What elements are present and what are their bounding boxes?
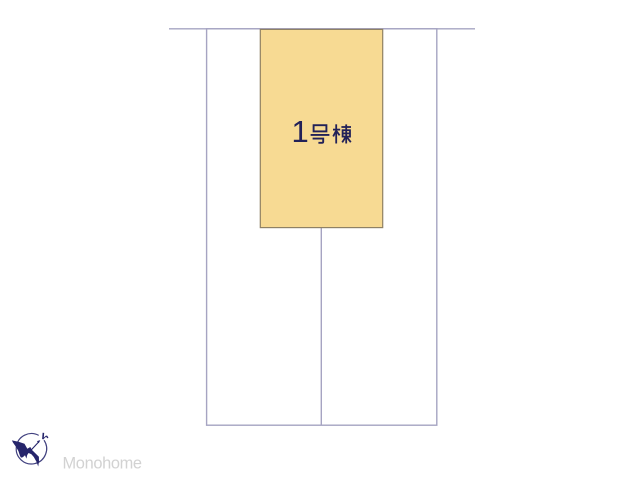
svg-text:Monohome: Monohome <box>63 455 142 473</box>
svg-text:1: 1 <box>292 114 309 149</box>
